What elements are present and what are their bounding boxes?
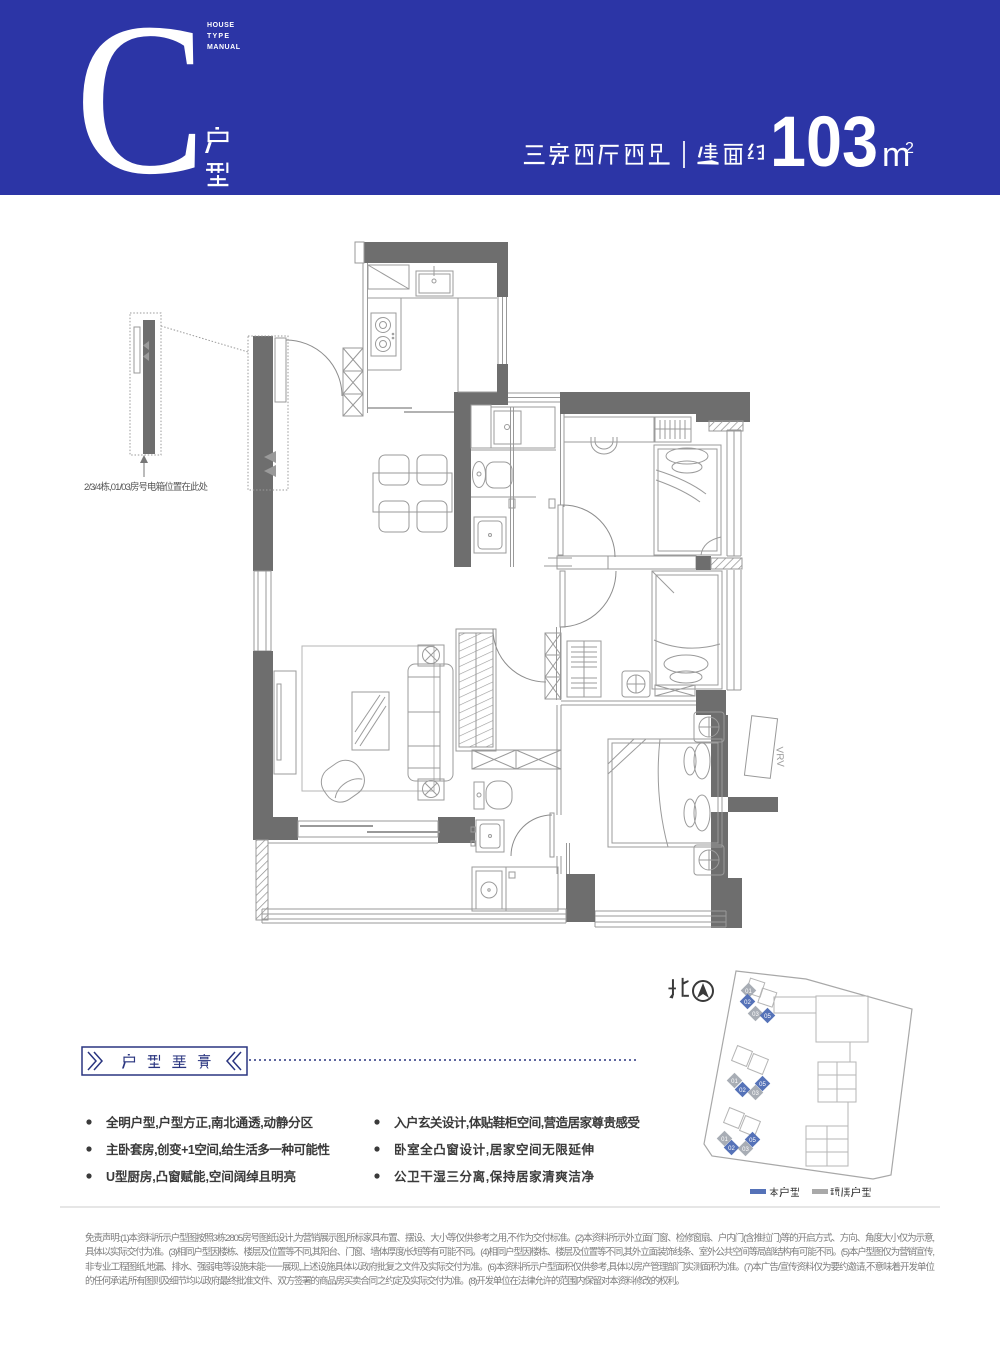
svg-text:入户玄关设计,体贴鞋柜空间,营造居家尊贵感受: 入户玄关设计,体贴鞋柜空间,营造居家尊贵感受	[394, 1115, 640, 1130]
svg-text:免责声明:(1)本资料所示户型图按照3栋2805房号图纸设计: 免责声明:(1)本资料所示户型图按照3栋2805房号图纸设计,为营销展示图,所标…	[85, 1232, 935, 1244]
svg-text:05: 05	[759, 1082, 766, 1088]
svg-text:05: 05	[764, 1014, 771, 1020]
svg-text:01: 01	[721, 1137, 728, 1143]
svg-text:03: 03	[752, 1012, 759, 1018]
svg-text:HOUSE: HOUSE	[207, 22, 234, 29]
svg-text:卧室全凸窗设计,居家空间无限延伸: 卧室全凸窗设计,居家空间无限延伸	[394, 1142, 594, 1157]
svg-text:U型厨房,凸窗赋能,空间阔绰且明亮: U型厨房,凸窗赋能,空间阔绰且明亮	[106, 1169, 296, 1184]
svg-text:03: 03	[742, 1147, 749, 1153]
svg-text:2/3/4栋,01/03房号电箱位置在此处: 2/3/4栋,01/03房号电箱位置在此处	[84, 481, 208, 493]
svg-text:01: 01	[731, 1079, 738, 1085]
svg-text:02: 02	[744, 1000, 751, 1006]
svg-text:主卧套房,创变+1空间,给生活多一种可能性: 主卧套房,创变+1空间,给生活多一种可能性	[106, 1142, 330, 1157]
svg-text:05: 05	[749, 1138, 756, 1144]
svg-text:VRV: VRV	[773, 746, 785, 767]
svg-text:02: 02	[728, 1146, 735, 1152]
svg-text:MANUAL: MANUAL	[207, 44, 241, 51]
svg-text:C: C	[75, 0, 206, 220]
svg-text:全明户型,户型方正,南北通透,动静分区: 全明户型,户型方正,南北通透,动静分区	[105, 1115, 313, 1130]
svg-text:103: 103	[770, 103, 878, 182]
svg-text:公卫干湿三分离,保持居家清爽洁净: 公卫干湿三分离,保持居家清爽洁净	[394, 1169, 594, 1184]
svg-text:02: 02	[739, 1088, 746, 1094]
svg-text:的任何承诺,所有图则及细节均以政府最终批准文件、双方签署的商: 的任何承诺,所有图则及细节均以政府最终批准文件、双方签署的商品房买卖合同之约定及…	[85, 1275, 685, 1287]
svg-text:TYPE: TYPE	[207, 33, 229, 40]
svg-text:01: 01	[745, 989, 752, 995]
svg-text:03: 03	[752, 1091, 759, 1097]
svg-text:2: 2	[905, 140, 914, 157]
svg-text:具体以实际交付为准。(3)相同户型因楼栋、楼层及位置等不同,: 具体以实际交付为准。(3)相同户型因楼栋、楼层及位置等不同,其阳台、门窗、墙体厚…	[85, 1246, 935, 1258]
svg-text:非专业工程图纸,地漏、排水、强弱电等设施未能一一展现,上述设: 非专业工程图纸,地漏、排水、强弱电等设施未能一一展现,上述设施具体以政府批复之文…	[85, 1261, 935, 1273]
